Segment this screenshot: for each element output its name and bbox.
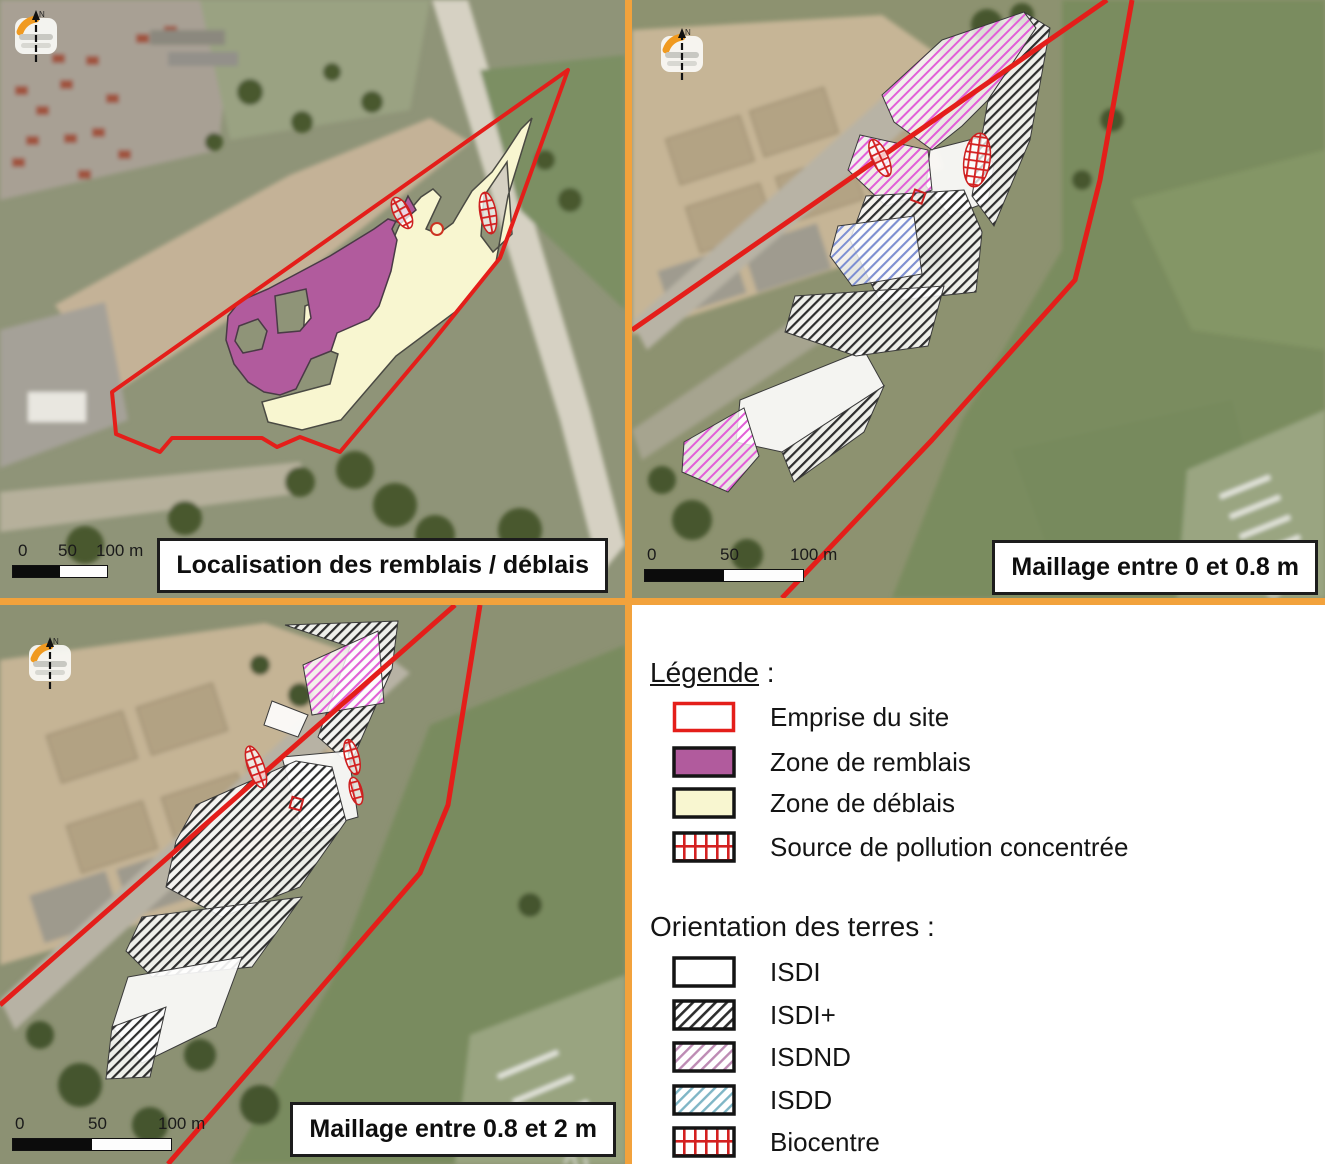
- legend-label: ISDI+: [770, 1000, 836, 1031]
- scale-segment-black: [13, 1139, 92, 1150]
- compass-north-icon: N: [658, 26, 708, 82]
- scale-fifty: 50: [720, 545, 739, 565]
- scale-labels: 0 50 100 m: [12, 541, 152, 565]
- legend-label: Zone de déblais: [770, 788, 955, 819]
- swatch-biocentre: [672, 1126, 736, 1158]
- swatch-site-outline: [672, 701, 736, 733]
- scale-segment-white: [92, 1139, 171, 1150]
- scale-hundred: 100 m: [158, 1114, 205, 1134]
- map-panel-maillage-08-2: 12: [0, 605, 625, 1164]
- scale-bar: 0 50 100 m: [12, 541, 152, 585]
- compass-n-label: N: [39, 10, 45, 19]
- scale-bar-segments: [644, 569, 804, 582]
- scale-segment-white: [724, 570, 803, 581]
- scale-hundred: 100 m: [96, 541, 143, 561]
- legend-label: Zone de remblais: [770, 747, 971, 778]
- swatch-isdi: [672, 956, 736, 988]
- map-title-maillage-0-08: Maillage entre 0 et 0.8 m: [992, 540, 1318, 595]
- scale-zero: 0: [647, 545, 656, 565]
- quadrant-divider-vertical: [625, 0, 632, 1164]
- swatch-isdnd: [672, 1041, 736, 1073]
- scale-bar: 0 50 100 m: [644, 545, 844, 589]
- scale-fifty: 50: [88, 1114, 107, 1134]
- scale-segment-black: [13, 566, 60, 577]
- map-title-localisation: Localisation des remblais / déblais: [157, 538, 608, 593]
- zone-isdd: [830, 216, 922, 286]
- legend-item-isdnd: ISDND: [672, 1041, 851, 1073]
- quadrant-divider-horizontal: [0, 598, 1325, 605]
- aerial-photo-maillage-0-08: 12: [632, 0, 1325, 598]
- swatch-pollution-grid: [672, 831, 736, 863]
- legend-panel: Légende : Emprise du site Zone de rembla…: [632, 605, 1325, 1164]
- scale-labels: 0 50 100 m: [12, 1114, 212, 1138]
- compass-north-icon: N: [26, 635, 76, 691]
- compass-north-icon: N: [12, 8, 62, 64]
- legend-item-isdd: ISDD: [672, 1084, 832, 1116]
- scale-fifty: 50: [58, 541, 77, 561]
- aerial-photo-maillage-08-2: 12: [0, 605, 625, 1164]
- scale-segment-white: [60, 566, 107, 577]
- legend-item-emprise: Emprise du site: [672, 701, 949, 733]
- map-title-maillage-08-2: Maillage entre 0.8 et 2 m: [290, 1102, 616, 1157]
- legend-label: Biocentre: [770, 1127, 880, 1158]
- scale-bar-segments: [12, 565, 108, 578]
- swatch-zone-remblais: [672, 746, 736, 778]
- legend-title: Légende :: [650, 657, 775, 689]
- legend-label: ISDND: [770, 1042, 851, 1073]
- figure-root: N 0 50 100 m Localisation des remblais /…: [0, 0, 1325, 1164]
- scale-segment-black: [645, 570, 724, 581]
- scale-zero: 0: [18, 541, 27, 561]
- legend-title-colon: :: [759, 657, 775, 688]
- map-panel-localisation: N 0 50 100 m Localisation des remblais /…: [0, 0, 625, 598]
- map-panel-maillage-0-08: 12: [632, 0, 1325, 598]
- swatch-zone-deblais: [672, 787, 736, 819]
- scale-labels: 0 50 100 m: [644, 545, 844, 569]
- legend-label: Source de pollution concentrée: [770, 832, 1128, 863]
- scale-zero: 0: [15, 1114, 24, 1134]
- legend-label: ISDD: [770, 1085, 832, 1116]
- compass-n-label: N: [685, 28, 691, 37]
- legend-item-remblais: Zone de remblais: [672, 746, 971, 778]
- orientation-title: Orientation des terres :: [650, 911, 935, 943]
- swatch-isdi-plus: [672, 999, 736, 1031]
- legend-title-word: Légende: [650, 657, 759, 688]
- legend-item-pollution: Source de pollution concentrée: [672, 831, 1128, 863]
- legend-label: ISDI: [770, 957, 821, 988]
- scale-bar: 0 50 100 m: [12, 1114, 212, 1158]
- legend-item-isdi-plus: ISDI+: [672, 999, 836, 1031]
- legend-item-deblais: Zone de déblais: [672, 787, 955, 819]
- legend-item-biocentre: Biocentre: [672, 1126, 880, 1158]
- legend-item-isdi: ISDI: [672, 956, 821, 988]
- aerial-photo-localisation: [0, 0, 625, 598]
- compass-n-label: N: [53, 637, 59, 646]
- scale-hundred: 100 m: [790, 545, 837, 565]
- scale-bar-segments: [12, 1138, 172, 1151]
- swatch-isdd: [672, 1084, 736, 1116]
- legend-label: Emprise du site: [770, 702, 949, 733]
